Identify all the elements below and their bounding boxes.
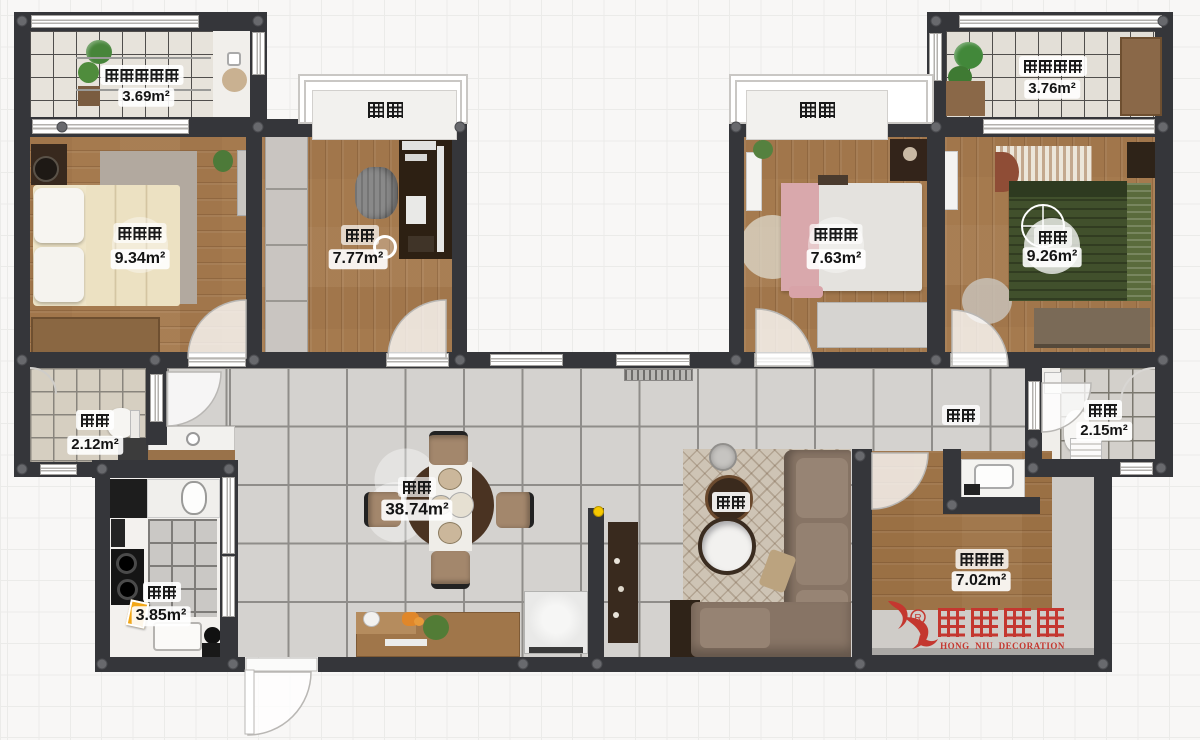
svg-text:R: R — [914, 613, 921, 624]
